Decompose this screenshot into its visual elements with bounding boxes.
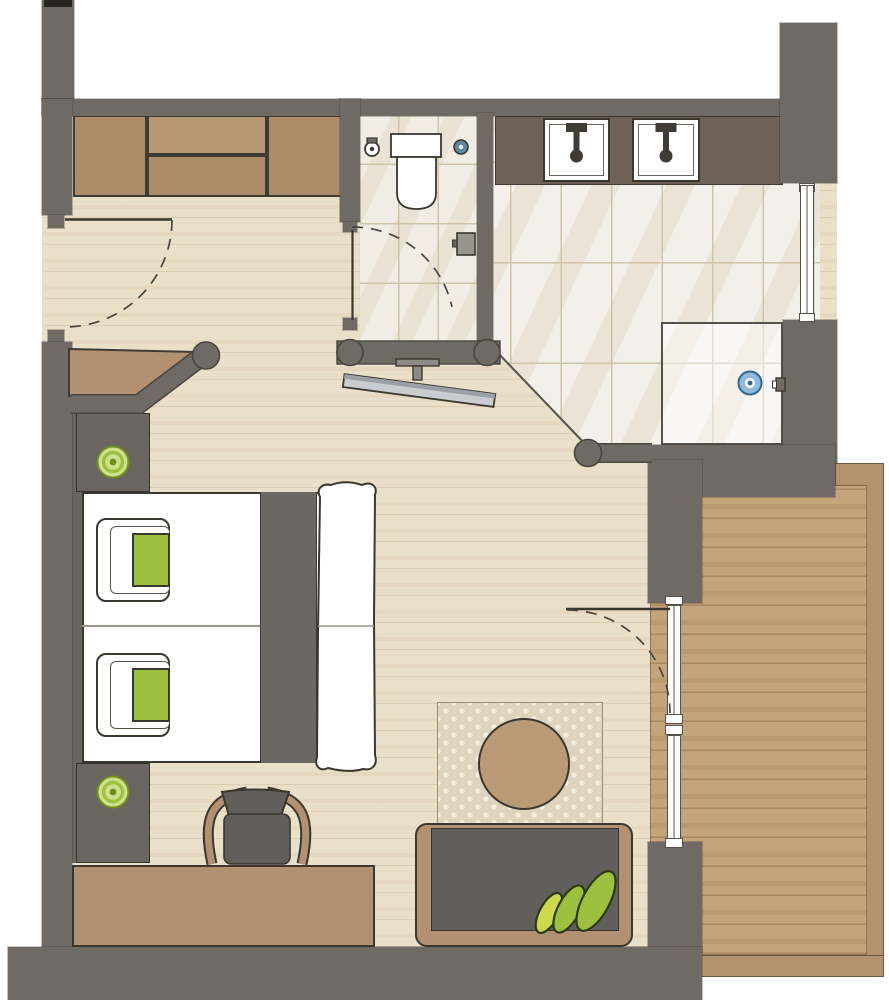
balcony-window [667,735,681,839]
balcony-window-jamb-bottom [665,838,683,848]
washbasin-right-basin [638,124,694,176]
wall-left-stub [42,0,74,99]
desk [72,865,375,947]
washbasin-right [632,118,700,182]
wall-right-lower [783,320,837,463]
wardrobe-section-middle-top [147,115,267,155]
nightstand-bottom [76,763,150,863]
balcony-mid-jamb-2 [665,725,683,735]
balcony-door-glass [667,605,681,716]
pillow-green-throw [132,668,170,722]
nightstand-top [76,413,150,492]
wc-door-jamb-bottom [343,318,357,330]
wall-top-right-stub [780,23,837,183]
sofa-seat [431,828,619,931]
washbasin-left [543,118,610,182]
entry-door-jamb-bottom [48,330,64,342]
window-jamb-bottom [799,313,815,322]
wc-tile-floor [360,113,477,342]
shower-tray [661,322,783,445]
bathroom-window [800,185,814,320]
wall-wc-right [477,113,493,345]
wall-wc-left [340,99,360,222]
wall-balcony-upper [648,460,702,603]
wall-bottom [8,947,702,1000]
wall-left-upper [42,99,72,215]
balcony-door-jamb-top [665,596,683,605]
wc-door-jamb-top [343,222,357,232]
pillow-green-throw [132,533,170,587]
entry-door-jamb-top [48,215,64,228]
wardrobe-section-left [73,115,147,197]
balcony-mid-jamb-1 [665,714,683,724]
bed-runner [260,492,317,763]
wall-balcony-lower [648,842,702,952]
round-table [478,718,570,810]
washbasin-left-basin [549,124,604,176]
wall-left-lower [42,342,72,947]
bed-divider [82,625,373,627]
wardrobe-section-middle-bottom [147,155,267,197]
wall-cap [44,0,72,7]
floor-plan [0,0,889,1000]
wall-top [42,99,783,116]
wardrobe-section-right [267,115,343,197]
